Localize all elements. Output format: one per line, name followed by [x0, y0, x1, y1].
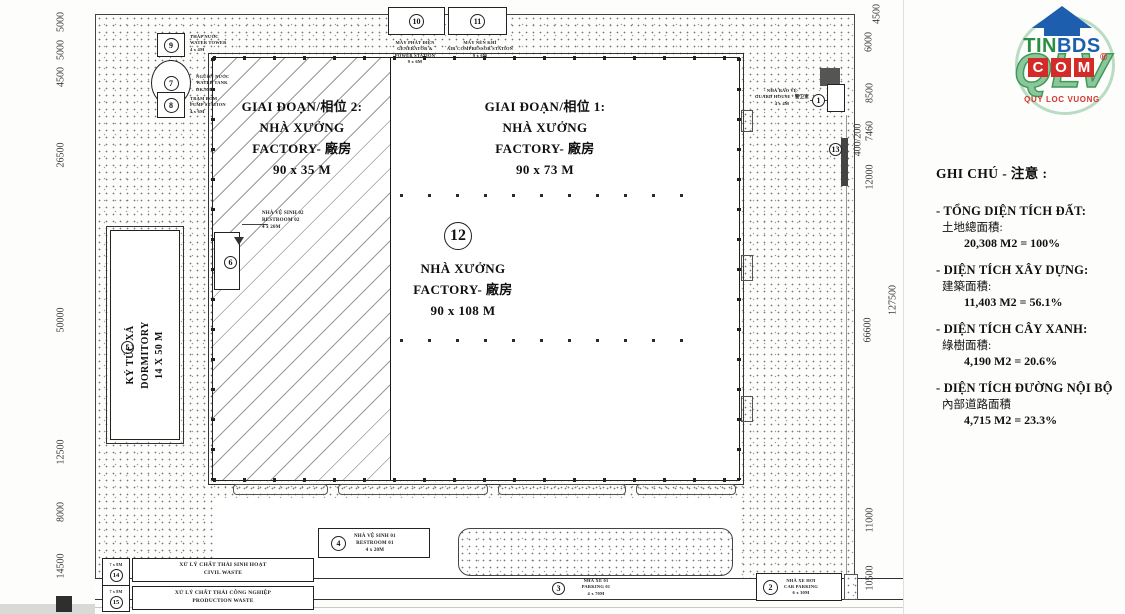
floor-drain-icon — [234, 237, 244, 245]
water-tank-label: NGUỒN NƯỚC WATER TANK DK 9M — [196, 74, 244, 93]
callout-3-number: 3 — [557, 584, 561, 593]
car-parking-building: 2 NHÀ XE HƠI CAR PARKING 6 x 30M — [756, 573, 842, 601]
legend-item-road: - DIỆN TÍCH ĐƯỜNG NỘI BỘ 內部道路面積 4,715 M2… — [936, 381, 1125, 428]
parking1-label: NHÀ XE 01 PARKING 01 4 x 70M — [570, 578, 622, 597]
canopy-strip-2 — [338, 484, 488, 495]
compressor-label: MÁY NÉN KHÍ AIR COMPRESSOR STATION 9 x 6… — [444, 40, 516, 59]
dim-left-2: 4500 — [56, 67, 67, 87]
generator-line4: 9 x 6M — [382, 59, 448, 65]
compressor-line3: 9 x 6M — [444, 53, 516, 59]
legend-land-value: 20,308 M2 = 100% — [964, 236, 1125, 251]
logo-com-o: O — [1051, 58, 1071, 77]
legend: GHI CHÚ - 注意 : - TỔNG DIỆN TÍCH ĐẤT: 土地總… — [936, 162, 1125, 440]
dim-right-6: 11000 — [865, 508, 876, 533]
legend-green-cn: 綠樹面積: — [942, 337, 1125, 353]
dim-right-0: 4500 — [872, 4, 883, 24]
civil-waste-label-box: XỬ LÝ CHẤT THẢI SINH HOẠT CIVIL WASTE — [132, 558, 314, 582]
phase2-line2: NHÀ XƯỞNG — [222, 117, 382, 138]
restroom2-label: NHÀ VỆ SINH 02 RESTROOM 02 4 x 20M — [262, 210, 324, 231]
restroom1-building: 4 NHÀ VỆ SINH 01 RESTROOM 01 4 x 20M — [318, 528, 430, 558]
legend-green-vi: - DIỆN TÍCH CÂY XANH: — [936, 322, 1125, 337]
callout-14-number: 14 — [113, 572, 120, 579]
water-tower-line3: 4 x 4M — [190, 47, 238, 53]
dim-left-6: 8000 — [56, 502, 67, 522]
water-tower-label: THÁP NƯỚC WATER TOWER 4 x 4M — [190, 34, 238, 53]
logo-com-row: C O M — [1028, 58, 1094, 77]
legend-built-value: 11,403 M2 = 56.1% — [964, 295, 1125, 310]
factory-line1: NHÀ XƯỞNG — [388, 258, 538, 279]
restroom2-line3: 4 x 20M — [262, 224, 324, 231]
dim-left-7: 14500 — [56, 554, 67, 579]
callout-7: 7 — [164, 76, 179, 91]
callout-8: 8 — [164, 98, 179, 113]
legend-title: GHI CHÚ - 注意 : — [936, 162, 1125, 182]
generator-label: MÁY PHÁT ĐIỆN GENERATOR & POWER STATION … — [382, 40, 448, 65]
dim-left-5: 12500 — [56, 440, 67, 465]
dim-right-outer: 127500 — [888, 285, 899, 315]
dim-right-3: 7460 — [865, 121, 876, 141]
production-waste-cell: 7 x 8M 15 — [103, 586, 129, 612]
phase1-label: GIAI ĐOẠN/相位 1: NHÀ XƯỞNG FACTORY- 廠房 90… — [450, 96, 640, 180]
factory-line3: 90 x 108 M — [388, 300, 538, 321]
east-annex-1 — [741, 110, 753, 132]
callout-7-number: 7 — [169, 79, 173, 88]
callout-2-number: 2 — [769, 583, 773, 592]
dim-left-0: 5000 — [56, 12, 67, 32]
factory-label: NHÀ XƯỞNG FACTORY- 廠房 90 x 108 M — [388, 258, 538, 321]
logo-tagline: QUY LOC VUONG — [1014, 95, 1110, 104]
guard-house-line2: GUARD HOUSE - 警卫室 — [754, 94, 810, 100]
house-roof-icon — [1032, 6, 1092, 28]
legend-built-cn: 建築面積: — [942, 278, 1125, 294]
phase1-line2: NHÀ XƯỞNG — [450, 117, 640, 138]
callout-9: 9 — [164, 38, 179, 53]
waste-buildings: 7 x 8M 14 7 x 8M 15 — [102, 558, 130, 612]
legend-road-vi: - DIỆN TÍCH ĐƯỜNG NỘI BỘ — [936, 381, 1125, 396]
legend-item-built: - DIỆN TÍCH XÂY DỰNG: 建築面積: 11,403 M2 = … — [936, 263, 1125, 310]
canopy-strip-4 — [636, 484, 736, 495]
dim-right-7: 10500 — [865, 566, 876, 591]
dormitory-label-wrap: KÝ TÚC XÁ DORMITORY 14 X 50 M — [96, 305, 196, 405]
legend-built-vi: - DIỆN TÍCH XÂY DỰNG: — [936, 263, 1125, 278]
dim-guard: 400/200 — [853, 124, 864, 157]
callout-13-number: 13 — [832, 145, 840, 154]
legend-item-green: - DIỆN TÍCH CÂY XANH: 綠樹面積: 4,190 M2 = 2… — [936, 322, 1125, 369]
registered-trademark-icon: ® — [1100, 52, 1107, 63]
callout-12: 12 — [444, 222, 472, 250]
guard-house-label: NHÀ BẢO VỆ GUARD HOUSE - 警卫室 4 x 4M — [754, 88, 810, 107]
canopy-strip-1 — [233, 484, 328, 495]
callout-11: 11 — [470, 14, 485, 29]
restroom2-line2: RESTROOM 02 — [262, 217, 324, 224]
callout-15: 15 — [110, 596, 123, 609]
car-parking-label: NHÀ XE HƠI CAR PARKING 6 x 30M — [784, 578, 818, 597]
car-parking-line1: NHÀ XE HƠI — [784, 578, 818, 584]
production-waste-label-box: XỬ LÝ CHẤT THẢI CÔNG NGHIỆP PRODUCTION W… — [132, 586, 314, 610]
callout-4-number: 4 — [337, 539, 341, 548]
dim-right-2: 8500 — [865, 83, 876, 103]
car-parking-line3: 6 x 30M — [784, 590, 818, 596]
column-grid-row-1 — [400, 194, 706, 197]
callout-6-number: 6 — [229, 258, 233, 267]
phase2-line3: FACTORY- 廠房 — [222, 138, 382, 159]
logo-bds: BDS — [1057, 35, 1101, 57]
dim-right-4: 12000 — [865, 165, 876, 190]
callout-6: 6 — [224, 256, 237, 269]
civil-waste-size: 7 x 8M — [110, 562, 123, 568]
callout-15-number: 15 — [113, 599, 120, 606]
callout-4: 4 — [331, 536, 346, 551]
east-annex-2 — [741, 255, 753, 281]
legend-land-cn: 土地總面積: — [942, 219, 1125, 235]
legend-road-cn: 內部道路面積 — [942, 396, 1125, 412]
factory-line2: FACTORY- 廠房 — [388, 279, 538, 300]
callout-12-number: 12 — [450, 227, 466, 245]
car-parking-annex — [844, 574, 858, 600]
generator-building: 10 — [388, 7, 445, 35]
dim-right-1: 6000 — [864, 32, 875, 52]
phase2-label: GIAI ĐOẠN/相位 2: NHÀ XƯỞNG FACTORY- 廠房 90… — [222, 96, 382, 180]
guard-house-building — [827, 84, 845, 112]
restroom1-line2: RESTROOM 01 — [354, 540, 396, 547]
callout-8-number: 8 — [169, 101, 173, 110]
dim-left-3: 26500 — [56, 143, 67, 168]
column-grid-row-2 — [400, 339, 706, 342]
pump-station-building: 8 — [157, 92, 185, 118]
phase2-line4: 90 x 35 M — [222, 159, 382, 180]
paper-fold-line — [903, 0, 904, 614]
dim-left-4: 50000 — [56, 308, 67, 333]
logo-com-m: M — [1074, 58, 1094, 77]
restroom1-line3: 4 x 20M — [354, 547, 396, 554]
callout-1: 1 — [812, 94, 825, 107]
dormitory-line1: KÝ TÚC XÁ — [124, 321, 139, 389]
callout-1-number: 1 — [817, 96, 821, 105]
production-waste-line2: PRODUCTION WASTE — [192, 598, 253, 606]
compressor-building: 11 — [448, 7, 507, 35]
legend-land-vi: - TỔNG DIỆN TÍCH ĐẤT: — [936, 204, 1125, 219]
callout-2: 2 — [763, 580, 778, 595]
production-waste-line1: XỬ LÝ CHẤT THẢI CÔNG NGHIỆP — [175, 590, 271, 598]
civil-waste-line2: CIVIL WASTE — [204, 570, 242, 578]
production-waste-size: 7 x 8M — [110, 589, 123, 595]
callout-10-number: 10 — [413, 17, 421, 26]
east-annex-3 — [741, 396, 753, 422]
legend-road-value: 4,715 M2 = 23.3% — [964, 413, 1125, 428]
scan-artifact — [56, 596, 72, 612]
callout-3: 3 — [552, 582, 565, 595]
fence-segment — [841, 138, 848, 186]
guard-house-line3: 4 x 4M — [754, 101, 810, 107]
lawn-strip — [458, 528, 733, 576]
restroom1-line1: NHÀ VỆ SINH 01 — [354, 533, 396, 540]
callout-10: 10 — [409, 14, 424, 29]
scan-shadow — [0, 604, 95, 614]
canopy-strip-3 — [498, 484, 626, 495]
phase1-line4: 90 x 73 M — [450, 159, 640, 180]
dormitory-label: KÝ TÚC XÁ DORMITORY 14 X 50 M — [124, 321, 168, 389]
dormitory-line2: DORMITORY — [139, 321, 154, 389]
callout-9-number: 9 — [169, 41, 173, 50]
phase2-line1: GIAI ĐOẠN/相位 2: — [222, 96, 382, 117]
pump-station-label: TRẠM BƠM PUMP STATION 4 x 6M — [190, 96, 238, 115]
tinbds-logo: QLV TINBDS C O M ® QUY LOC VUONG — [1006, 2, 1120, 116]
pump-station-line3: 4 x 6M — [190, 109, 238, 115]
logo-com-c: C — [1028, 58, 1048, 77]
civil-waste-cell: 7 x 8M 14 — [103, 559, 129, 586]
callout-14: 14 — [110, 569, 123, 582]
callout-13: 13 — [829, 143, 842, 156]
site-plan-scan: GIAI ĐOẠN/相位 2: NHÀ XƯỞNG FACTORY- 廠房 90… — [0, 0, 1125, 614]
compressor-line2: AIR COMPRESSOR STATION — [444, 46, 516, 52]
legend-item-land: - TỔNG DIỆN TÍCH ĐẤT: 土地總面積: 20,308 M2 =… — [936, 204, 1125, 251]
civil-waste-line1: XỬ LÝ CHẤT THẢI SINH HOẠT — [179, 562, 266, 570]
water-tower-building: 9 — [157, 33, 185, 57]
phase1-line1: GIAI ĐOẠN/相位 1: — [450, 96, 640, 117]
parking1-line3: 4 x 70M — [570, 591, 622, 597]
logo-tin: TIN — [1023, 35, 1057, 57]
restroom1-label: NHÀ VỆ SINH 01 RESTROOM 01 4 x 20M — [354, 533, 396, 554]
water-tank-line3: DK 9M — [196, 87, 244, 93]
restroom2-line1: NHÀ VỆ SINH 02 — [262, 210, 324, 217]
dim-right-5: 66600 — [863, 318, 874, 343]
phase1-line3: FACTORY- 廠房 — [450, 138, 640, 159]
callout-11-number: 11 — [474, 17, 482, 26]
dim-left-1: 5000 — [56, 40, 67, 60]
dormitory-line3: 14 X 50 M — [153, 321, 168, 389]
legend-green-value: 4,190 M2 = 20.6% — [964, 354, 1125, 369]
